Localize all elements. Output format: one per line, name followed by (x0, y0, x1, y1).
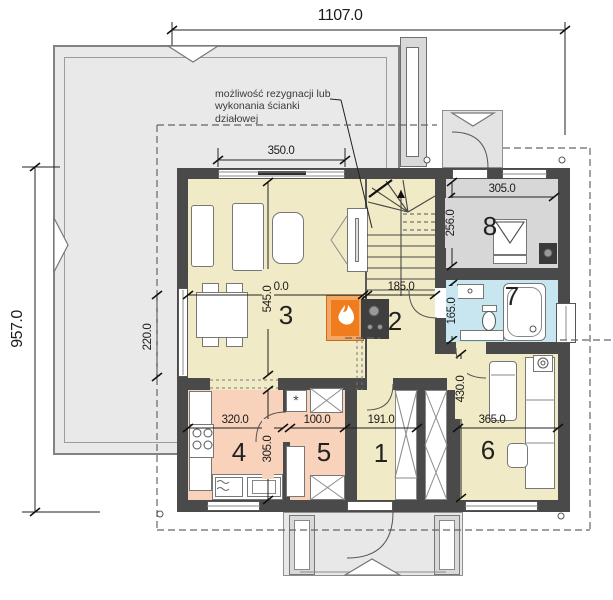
room-label-4: 4 (225, 437, 253, 468)
dim-utility-width: 305.0 (472, 183, 532, 195)
chimney-column-inner (406, 47, 419, 157)
room-label-2: 2 (381, 306, 409, 337)
bath-sink (457, 284, 484, 299)
partition-annotation: możliwość rezygnacji lub wykonania ścian… (215, 88, 339, 125)
dim-hall-top-width: 185.0 (371, 281, 431, 293)
back-door (452, 169, 488, 179)
kitchen-sink-basin (252, 480, 276, 494)
pantry-shelf-top (310, 388, 343, 413)
coffee-table (272, 212, 304, 264)
wardrobe-right (425, 390, 447, 500)
stove (189, 424, 214, 458)
desk (525, 357, 555, 489)
wardrobe-header-wall (393, 378, 447, 390)
dim-pantry-width: 100.0 (287, 414, 347, 426)
dim-kitchen-width: 320.0 (205, 414, 265, 426)
terrace-door (178, 288, 188, 377)
room-6-door-opening (456, 342, 486, 354)
room-3-floor (188, 179, 365, 378)
washer (533, 355, 553, 372)
desk-chair (507, 443, 528, 468)
kitchen-dining-opening (210, 378, 278, 390)
hall-opening (367, 378, 393, 390)
kitchen-window (207, 501, 260, 511)
front-door (347, 501, 393, 511)
room-8-window (502, 169, 547, 179)
dim-room6-depth: 430.0 (455, 359, 467, 419)
porch-column-left-inner (294, 520, 310, 570)
tv (355, 218, 359, 262)
bathroom-window (556, 303, 576, 343)
dim-kitchen-depth: 305.0 (262, 419, 274, 479)
dining-chair (226, 283, 243, 293)
dim-hall-width: 191.0 (351, 414, 411, 426)
armchair (191, 205, 214, 267)
floor-plan-canvas: * 1107.0 957.0 350.0 305.0 256.0 510.0 1… (0, 0, 613, 600)
dim-overall-width: 1107.0 (290, 7, 390, 25)
toilet-tank (482, 305, 497, 312)
living-window-slider (258, 171, 306, 175)
dining-chair (202, 283, 219, 293)
fireplace (331, 300, 359, 336)
dining-chair (202, 337, 219, 347)
dim-overall-depth: 957.0 (9, 299, 27, 359)
dishwasher (215, 477, 243, 497)
wardrobe-left (395, 390, 417, 500)
pantry-appliance-symbol: * (288, 392, 304, 408)
dim-bath-depth: 165.0 (446, 286, 458, 336)
room-6-window (465, 501, 538, 511)
dining-table (196, 292, 248, 338)
boiler-base (493, 255, 527, 264)
hall-left-wall (345, 390, 357, 500)
room-label-1: 1 (367, 438, 395, 469)
bed (489, 361, 517, 421)
pantry-cabinet (286, 446, 305, 497)
dim-living-width: 510.0 (245, 281, 305, 293)
bath-vanity (460, 330, 504, 341)
dim-terrace-door: 220.0 (142, 307, 154, 367)
utility-sink (539, 243, 557, 264)
sofa (232, 203, 264, 271)
dining-chair (226, 337, 243, 347)
back-porch (442, 110, 503, 168)
dim-utility-depth: 256.0 (445, 198, 457, 248)
wardrobe-mid-wall (417, 390, 425, 500)
room-label-5: 5 (310, 437, 338, 468)
room-label-6: 6 (474, 435, 502, 466)
room-label-7: 7 (498, 281, 526, 312)
porch-column-right-inner (439, 520, 455, 570)
pantry-shelf-bottom (310, 475, 345, 500)
dim-room6-width: 365.0 (462, 414, 522, 426)
room-label-8: 8 (476, 211, 504, 242)
room-label-3: 3 (272, 300, 300, 331)
dim-living-window: 350.0 (236, 145, 326, 157)
